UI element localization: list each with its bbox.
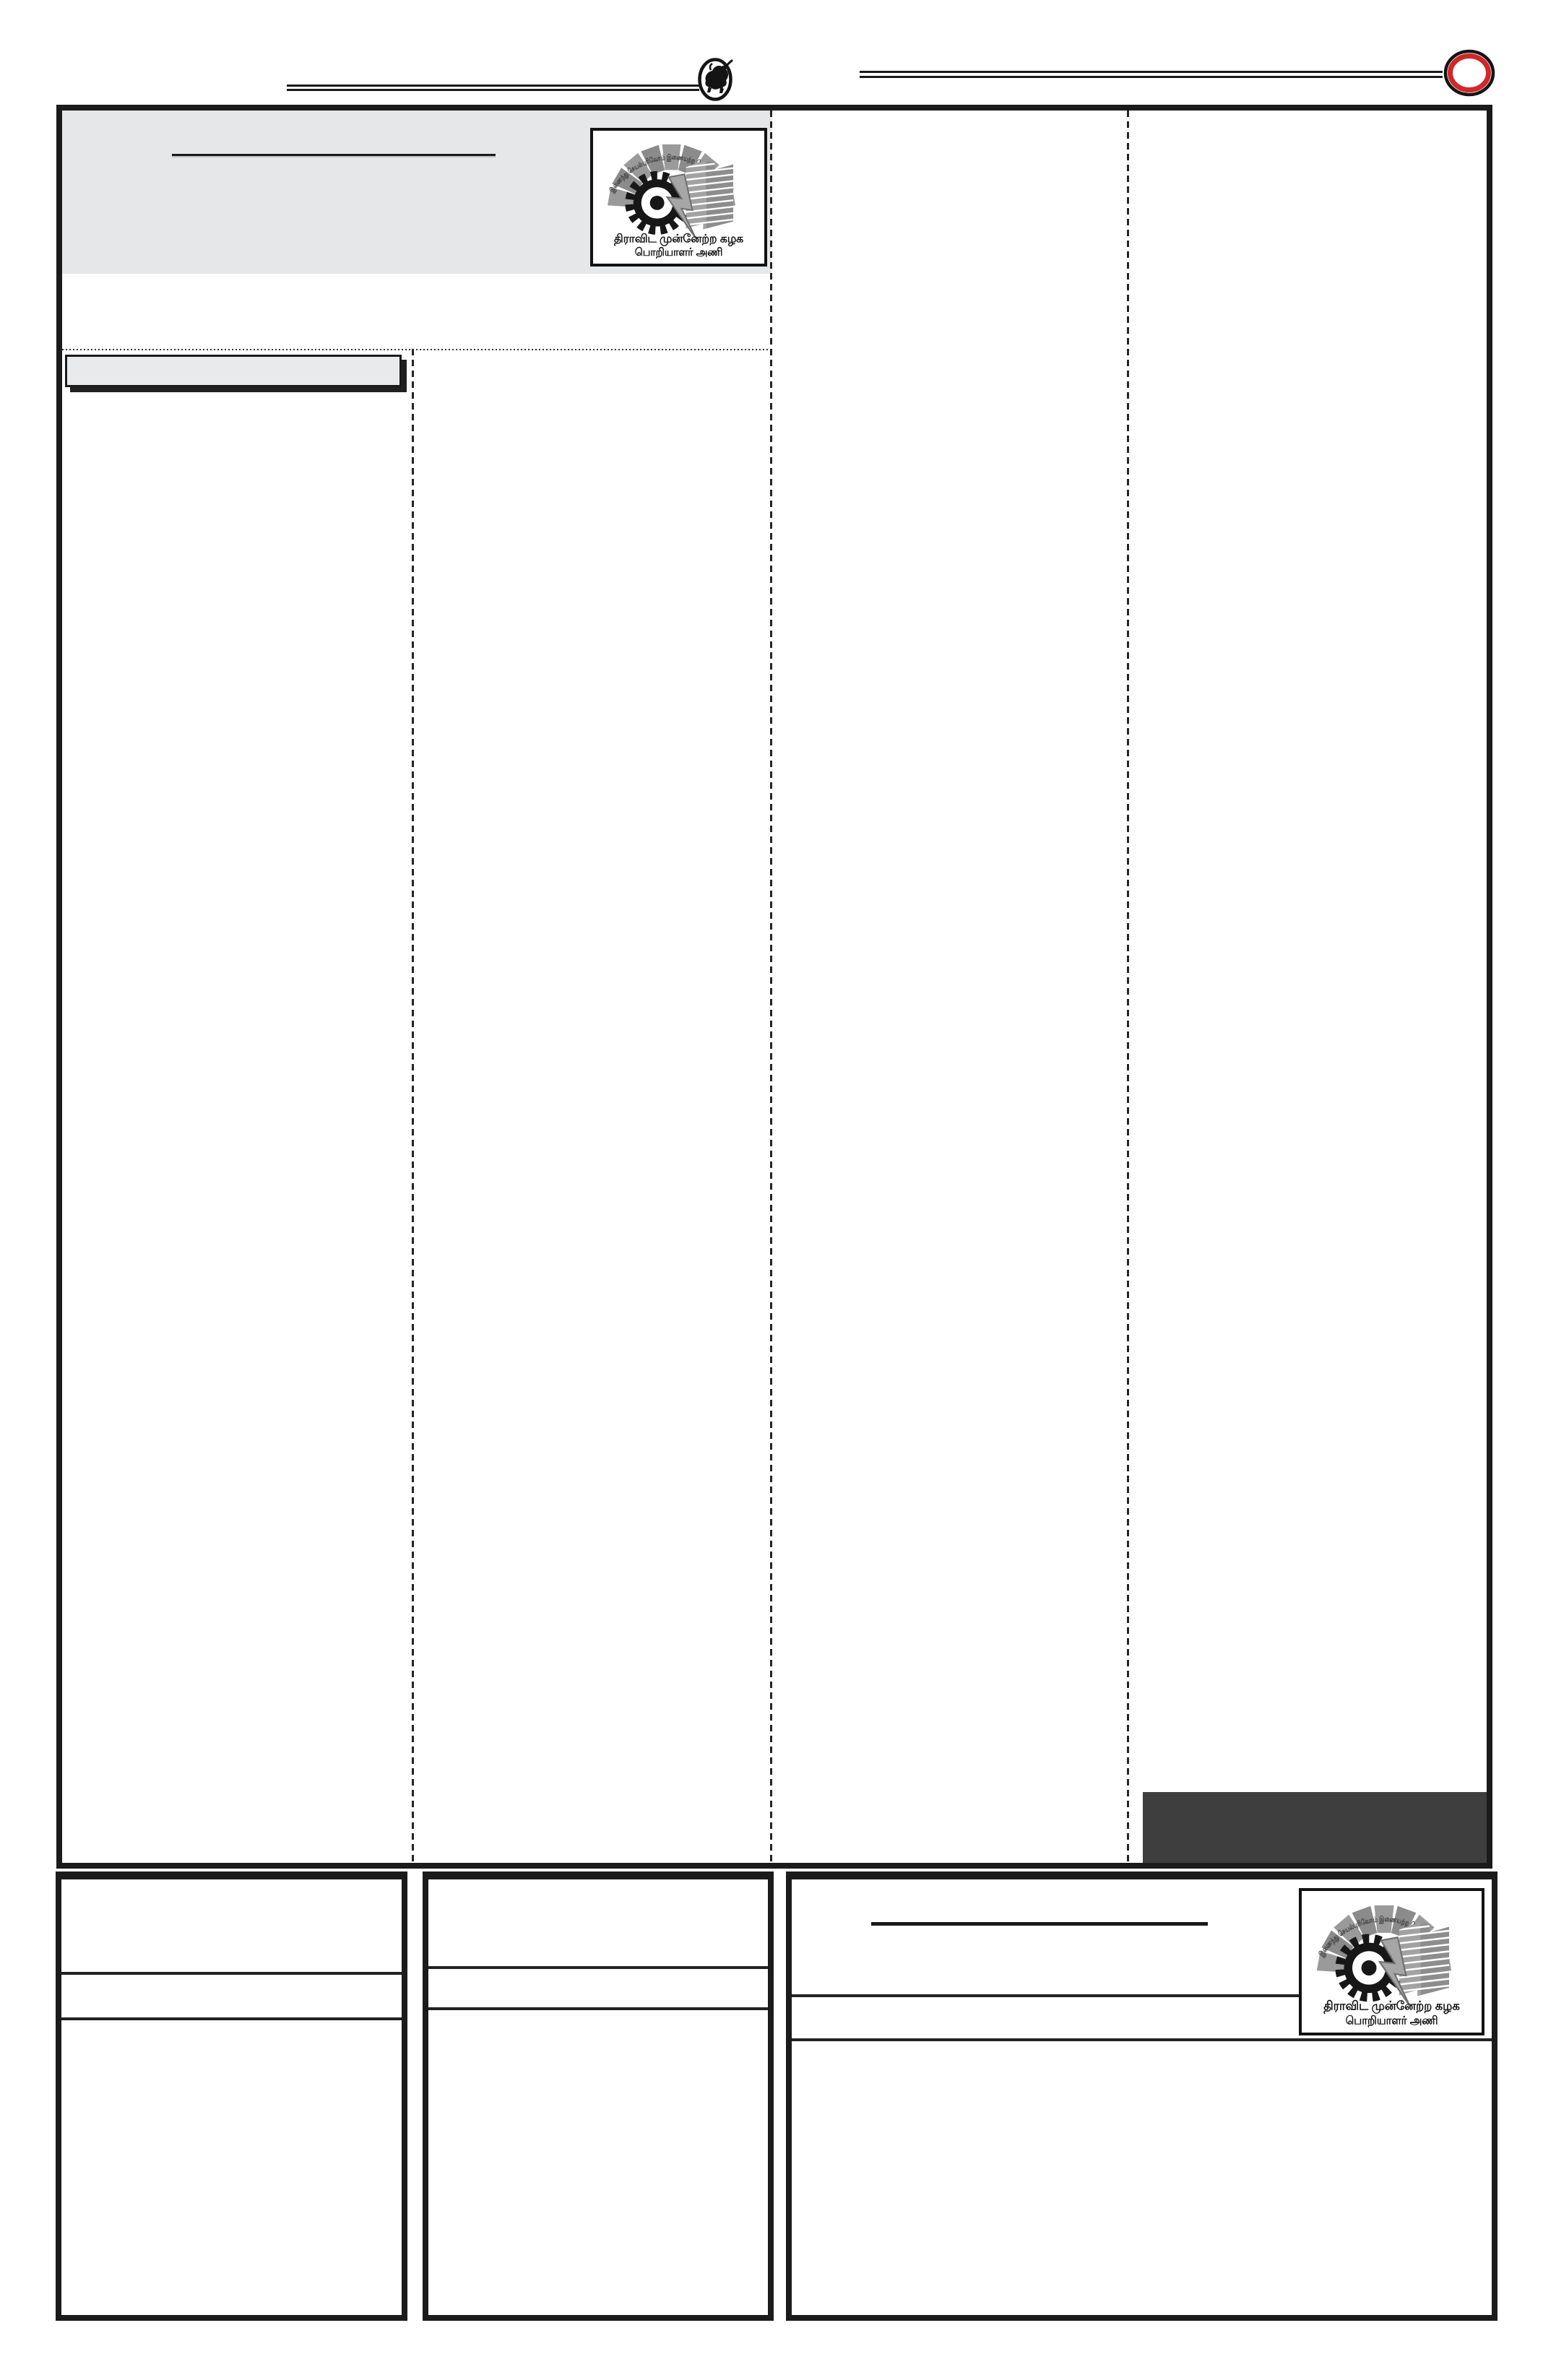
ad-box-left-rule-2	[61, 2017, 402, 2020]
ad-box-right-title-underline	[871, 1922, 1208, 1926]
masthead-rule-left	[287, 85, 699, 91]
buildings-icon	[1398, 1918, 1451, 1999]
bottom-right-banner	[1143, 1792, 1487, 1863]
content-board: இணைந்து செயல்புரிவோம் இணையற்ற வெற்றி கட்…	[56, 105, 1492, 1869]
red-ring-icon	[1442, 48, 1497, 98]
dmk-engineers-wing-emblem: இணைந்து செயல்புரிவோம் இணையற்ற வெற்றி கட்…	[590, 128, 767, 267]
bull-icon	[696, 56, 735, 102]
masthead-rule-right	[860, 71, 1443, 78]
ad-box-right-rule-1	[792, 1994, 1299, 1997]
ad-box-middle-rule-1	[428, 1966, 768, 1969]
emblem-name-line1: திராவிட முன்னேற்ற கழக	[1323, 1999, 1460, 2013]
newspaper-page: இணைந்து செயல்புரிவோம் இணையற்ற வெற்றி கட்…	[0, 0, 1543, 2380]
ad-box-right-rule-2	[792, 2038, 1492, 2041]
ad-box-middle	[423, 1871, 774, 2321]
column-divider-3	[1127, 111, 1129, 1863]
emblem-name-line2: பொறியாளர் அணி	[1346, 2015, 1438, 2028]
column-divider-1	[412, 349, 414, 1863]
ad-box-middle-rule-2	[428, 2007, 768, 2010]
emblem-graphic: இணைந்து செயல்புரிவோம் இணையற்ற வெற்றி கட்…	[595, 133, 762, 261]
lead-story-underline	[172, 154, 496, 157]
emblem-graphic: இணைந்து செயல்புரிவோம் இணையற்ற வெற்றி கட்…	[1304, 1893, 1479, 2030]
section-dotted-rule	[62, 349, 771, 350]
buildings-icon	[684, 156, 735, 232]
emblem-name-line1: திராவிட முன்னேற்ற கழக	[614, 233, 743, 246]
dmk-engineers-wing-emblem-small: இணைந்து செயல்புரிவோம் இணையற்ற வெற்றி கட்…	[1299, 1888, 1484, 2035]
column-divider-2	[770, 111, 772, 1863]
ad-box-left-rule-1	[61, 1972, 402, 1975]
ad-box-left	[56, 1871, 407, 2321]
ad-box-right: இணைந்து செயல்புரிவோம் இணையற்ற வெற்றி கட்…	[786, 1871, 1497, 2321]
headline-banner-plate	[65, 355, 402, 387]
emblem-name-line2: பொறியாளர் அணி	[635, 246, 722, 259]
